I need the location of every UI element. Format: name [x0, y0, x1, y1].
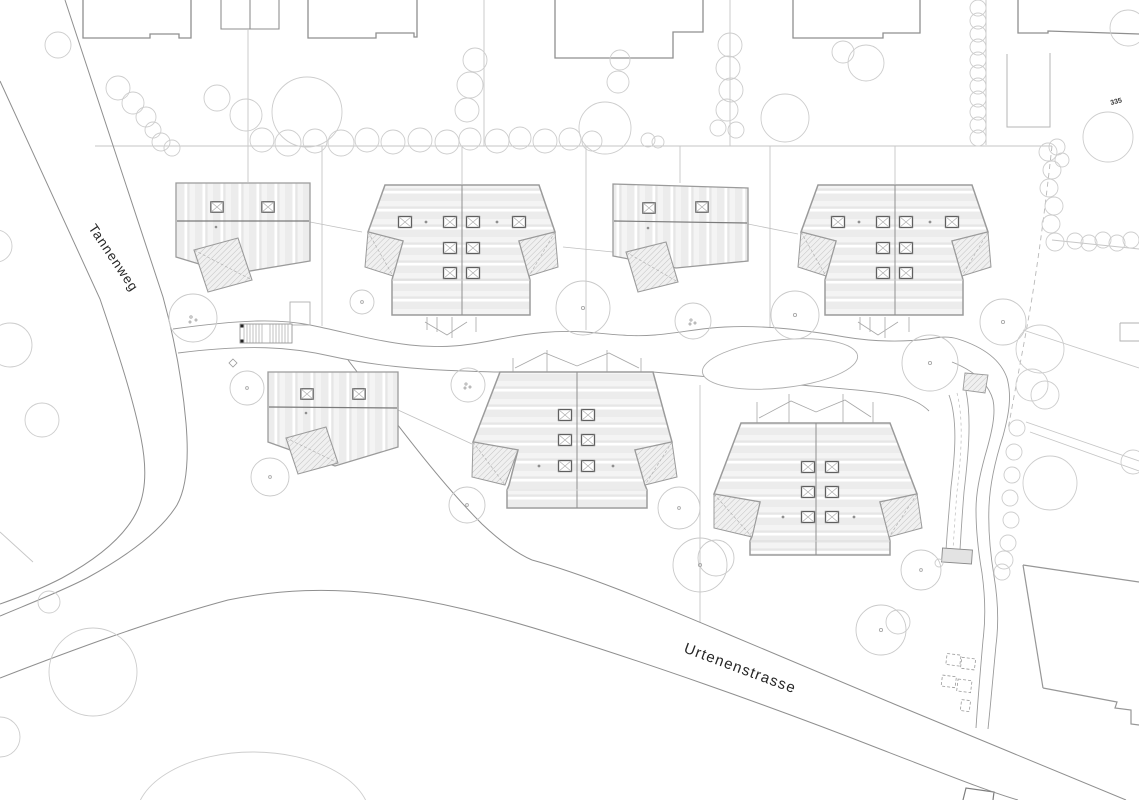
roof-wing	[714, 494, 760, 537]
garage-ramp	[946, 373, 988, 551]
parcel-number-label: 335	[1110, 97, 1123, 107]
exterior-stairs	[240, 324, 292, 343]
building-apartment-southcenter	[472, 372, 677, 508]
outbuilding-northcenter	[613, 184, 748, 292]
tannenweg-edge-east	[0, 0, 187, 616]
utility-marker	[229, 359, 237, 367]
outbuilding-northwest	[176, 183, 310, 292]
neighbor-building-southeast	[963, 565, 1139, 800]
urtenenstrasse-edge-north	[532, 560, 1126, 800]
street-label-tannenweg: Tannenweg	[86, 221, 142, 294]
parcel-boundary-lines	[0, 0, 1139, 622]
tannenweg-edge-west	[0, 81, 145, 604]
building-apartment-northwest	[365, 185, 558, 315]
street-label-urtenenstrasse: Urtenenstrasse	[682, 640, 799, 697]
street-tannenweg	[0, 0, 187, 616]
site-plan: Tannenweg Urtenenstrasse 335	[0, 0, 1139, 800]
parking-stalls	[938, 653, 975, 711]
building-apartment-northeast	[798, 185, 991, 315]
building-apartment-southeast	[714, 423, 922, 555]
site-plan-svg: Tannenweg Urtenenstrasse 335	[0, 0, 1139, 800]
urtenenstrasse-edge-south	[0, 590, 1018, 800]
garage-door	[942, 548, 973, 564]
oval-lawn-island	[700, 332, 860, 396]
outbuilding-southwest	[268, 372, 398, 474]
